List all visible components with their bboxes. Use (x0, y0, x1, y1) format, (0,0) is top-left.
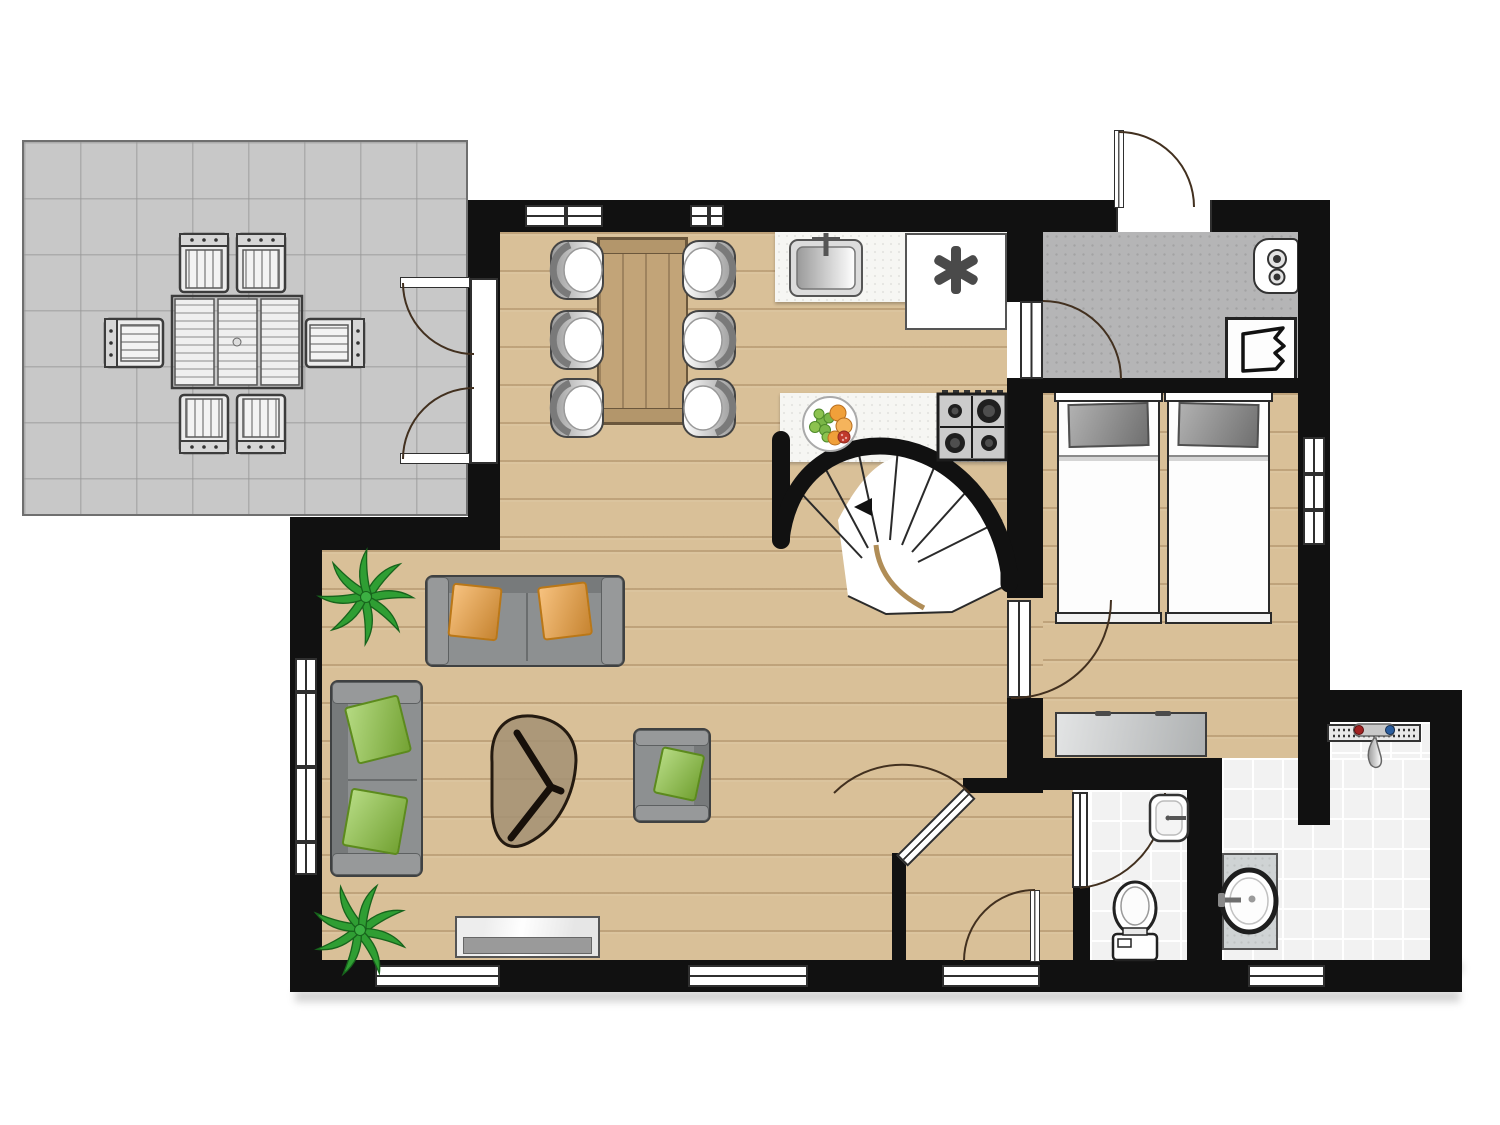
wall-toilet-west (1073, 886, 1090, 962)
wall-hall-stub (892, 853, 906, 961)
bed-pillow (1177, 402, 1259, 448)
wall-utility-bedroom-divider (1043, 378, 1298, 393)
toilet-door-leaf (1072, 792, 1088, 888)
french-door-frame (470, 278, 498, 464)
window-mullion (295, 840, 317, 844)
window-bedroom-east (1303, 437, 1325, 545)
wall-step (290, 517, 500, 550)
orange-pillow (537, 581, 593, 641)
dresser-handle (1155, 711, 1171, 716)
window-top-2 (690, 205, 724, 227)
floor-plan (0, 0, 1500, 1125)
table-end (599, 408, 686, 423)
table-end (599, 239, 686, 254)
bed-pillow (1067, 402, 1149, 448)
sofa-armrest (427, 577, 449, 665)
window-mullion (564, 205, 568, 227)
wall-hall-upper-stub (963, 778, 1009, 793)
dresser (1055, 712, 1207, 757)
window-mullion (1303, 472, 1325, 476)
entrance-door-leaf-top (1114, 130, 1124, 208)
french-door-leaf-upper (400, 277, 470, 288)
armchair (633, 728, 711, 823)
wall-kitchen-2 (1007, 378, 1043, 598)
window-mullion (1303, 508, 1325, 512)
entrance-door-opening-top (1116, 200, 1212, 232)
sofa-left (330, 680, 423, 877)
window-living-west (295, 658, 317, 875)
green-pillow (341, 787, 408, 855)
green-pillow (344, 694, 413, 765)
armchair-armrest (635, 730, 709, 746)
french-door-leaf-lower (400, 453, 470, 464)
single-bed-right (1167, 395, 1270, 623)
washing-machine (1225, 317, 1297, 384)
dresser-handle (1095, 711, 1111, 716)
window-bottom-2 (688, 965, 808, 987)
dining-table (597, 237, 688, 425)
bathroom-vanity (1222, 853, 1278, 950)
single-bed-left (1057, 395, 1160, 623)
footboard (1165, 612, 1272, 624)
wall-bath-east (1430, 690, 1462, 992)
window-hall-bottom (942, 965, 1040, 987)
entrance-door-arc-top (1119, 132, 1194, 207)
armchair-armrest (635, 805, 709, 821)
orange-pillow (447, 583, 502, 642)
sofa-armrest (601, 577, 623, 665)
utility-door-leaf (1020, 301, 1043, 379)
shower-floor (1330, 722, 1430, 758)
tv-sideboard-front (463, 937, 592, 954)
window-top-1 (525, 205, 603, 227)
window-mullion (707, 205, 711, 227)
hall-entrance-door-leaf (1030, 890, 1040, 962)
kitchen-counter-hob (780, 393, 1007, 462)
bedroom-door-leaf (1007, 600, 1031, 698)
footboard (1055, 612, 1162, 624)
sofa-seat-split (348, 779, 417, 781)
sofa-armrest (332, 853, 421, 875)
window-mullion (295, 765, 317, 769)
boiler (1253, 238, 1299, 294)
sofa-top (425, 575, 625, 667)
window-bathroom-bottom (1248, 965, 1325, 987)
wall-toilet-east (1187, 758, 1222, 960)
freezer-unit (905, 233, 1007, 330)
sofa-seat-split (526, 593, 528, 661)
window-bottom-1 (375, 965, 500, 987)
wall-kitchen-1 (1007, 232, 1043, 302)
duvet-fold (1059, 455, 1158, 461)
duvet-fold (1169, 455, 1268, 461)
tv-sideboard (455, 916, 600, 958)
toilet-floor (1090, 790, 1187, 960)
window-mullion (295, 690, 317, 694)
